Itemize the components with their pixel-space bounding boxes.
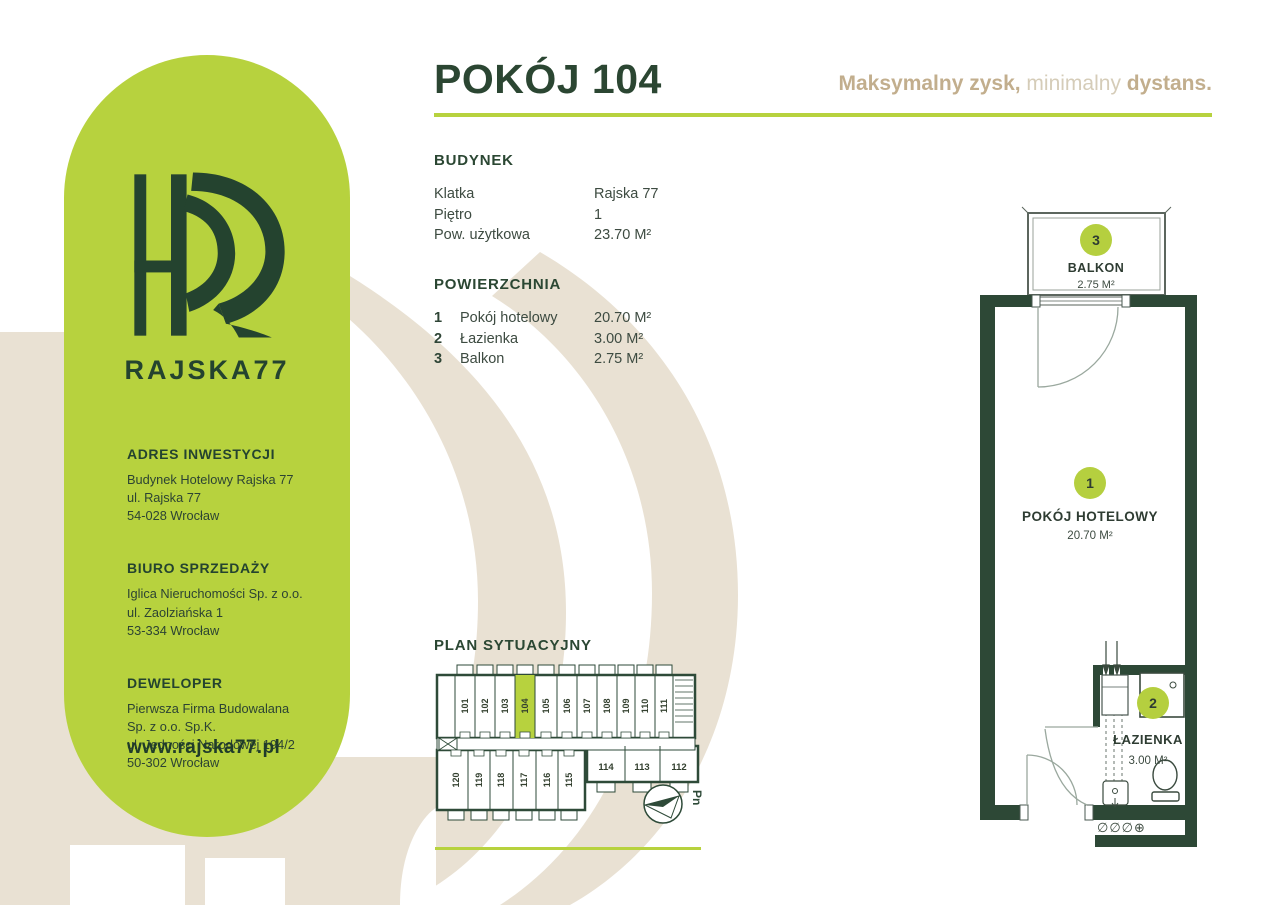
siteplan-room-label: 116: [542, 773, 552, 788]
siteplan-room-label: 112: [671, 762, 686, 773]
website-link[interactable]: www.rajska77.pl: [127, 737, 280, 759]
room-area: 2.75 M²: [1077, 279, 1115, 291]
page-title: POKÓJ 104: [434, 56, 662, 103]
room-label: Pokój hotelowy: [460, 308, 594, 329]
room-area: 3.00 M²: [594, 329, 643, 350]
tagline-bold-1: Maksymalny zysk,: [838, 72, 1020, 95]
room-area: 20.70 M²: [594, 308, 651, 329]
siteplan-room-label: 111: [659, 699, 669, 713]
siteplan-room-label: 117: [519, 773, 529, 788]
siteplan-room-label: 103: [500, 698, 510, 713]
spec-value: Rajska 77: [594, 184, 658, 205]
room-name: ŁAZIENKA: [1113, 732, 1183, 747]
section-biuro-sprzedazy: BIURO SPRZEDAŻY Iglica Nieruchomości Sp.…: [127, 560, 332, 639]
spec-label: Pow. użytkowa: [434, 225, 594, 246]
room-label: Łazienka: [460, 329, 594, 350]
siteplan-room-label: 108: [602, 698, 612, 713]
siteplan-room-label: 120: [451, 772, 461, 787]
address-line: Iglica Nieruchomości Sp. z o.o.: [127, 585, 332, 603]
siteplan-heading: PLAN SYTUACYJNY: [434, 637, 592, 654]
tagline: Maksymalny zysk, minimalny dystans.: [838, 72, 1212, 96]
siteplan-room-label: 118: [496, 773, 506, 788]
rajska77-logo-icon: [127, 165, 292, 345]
site-plan: 101 102 103 104 105 106 107 108 109 110 …: [430, 658, 715, 863]
siteplan-room-label: 114: [598, 762, 614, 773]
room-name: POKÓJ HOTELOWY: [1022, 509, 1158, 524]
spec-row: 1 Pokój hotelowy 20.70 M²: [434, 308, 651, 329]
spec-row: 3 Balkon 2.75 M²: [434, 349, 651, 370]
address-line: Sp. z o.o. Sp.K.: [127, 718, 332, 736]
address-line: Budynek Hotelowy Rajska 77: [127, 471, 332, 489]
siteplan-room-label: 106: [562, 698, 572, 713]
spec-row: 2 Łazienka 3.00 M²: [434, 329, 651, 350]
tagline-light: minimalny: [1021, 72, 1127, 95]
address-line: 53-334 Wrocław: [127, 622, 332, 640]
unit-floor-plan: ∅∅∅⊕ 3 BALKON 2.75 M² 1 POKÓJ HOTELOWY 2…: [975, 205, 1210, 875]
brand-panel: RAJSKA77 ADRES INWESTYCJI Budynek Hotelo…: [64, 55, 350, 837]
budynek-block: BUDYNEK Klatka Rajska 77 Piętro 1 Pow. u…: [434, 152, 658, 246]
powierzchnia-heading: POWIERZCHNIA: [434, 276, 651, 293]
room-area: 20.70 M²: [1067, 530, 1113, 542]
balcony-door-swing: [1038, 307, 1118, 387]
address-line: Pierwsza Firma Budowalana: [127, 700, 332, 718]
compass-north-icon: Pn: [644, 785, 704, 823]
spec-label: Klatka: [434, 184, 594, 205]
spec-value: 23.70 M²: [594, 225, 651, 246]
room-number: 2: [434, 329, 460, 350]
siteplan-room-label: 107: [582, 698, 592, 713]
siteplan-room-label-highlighted: 104: [520, 698, 530, 713]
address-line: ul. Zaolziańska 1: [127, 604, 332, 622]
siteplan-room-label: 110: [640, 699, 650, 714]
room-name: BALKON: [1068, 261, 1124, 275]
powierzchnia-block: POWIERZCHNIA 1 Pokój hotelowy 20.70 M² 2…: [434, 276, 651, 370]
room-number: 3: [434, 349, 460, 370]
spec-row: Piętro 1: [434, 205, 658, 226]
header-rule: [434, 113, 1212, 117]
spec-row: Klatka Rajska 77: [434, 184, 658, 205]
room-area: 3.00 M²: [1129, 755, 1168, 767]
room-label: Balkon: [460, 349, 594, 370]
siteplan-room-label: 119: [474, 773, 484, 788]
section-adres-inwestycji: ADRES INWESTYCJI Budynek Hotelowy Rajska…: [127, 446, 332, 525]
brand-name: RAJSKA77: [64, 355, 350, 386]
budynek-heading: BUDYNEK: [434, 152, 658, 169]
address-line: 54-028 Wrocław: [127, 507, 332, 525]
room-number: 1: [434, 308, 460, 329]
section-heading: ADRES INWESTYCJI: [127, 446, 332, 462]
siteplan-room-label: 101: [460, 698, 470, 713]
brochure-page: RAJSKA77 ADRES INWESTYCJI Budynek Hotelo…: [0, 0, 1280, 905]
section-heading: BIURO SPRZEDAŻY: [127, 560, 332, 576]
siteplan-room-label: 105: [541, 698, 551, 713]
siteplan-room-label: 113: [634, 762, 649, 773]
spec-label: Piętro: [434, 205, 594, 226]
spec-value: 1: [594, 205, 602, 226]
tagline-bold-2: dystans.: [1127, 72, 1212, 95]
sink-icon: [1103, 781, 1128, 807]
siteplan-room-label: 109: [621, 698, 631, 713]
bottom-rule: [435, 847, 701, 850]
room-badge-number: 1: [1086, 475, 1094, 491]
spec-row: Pow. użytkowa 23.70 M²: [434, 225, 658, 246]
entrance-doors: [1020, 727, 1098, 820]
siteplan-room-label: 102: [480, 698, 490, 713]
utility-symbols: ∅∅∅⊕: [1097, 820, 1146, 835]
section-heading: DEWELOPER: [127, 675, 332, 691]
room-badge-number: 3: [1092, 232, 1100, 248]
compass-label: Pn: [690, 790, 704, 805]
address-line: ul. Rajska 77: [127, 489, 332, 507]
room-area: 2.75 M²: [594, 349, 643, 370]
balcony-window: [1032, 295, 1130, 307]
siteplan-room-label: 115: [564, 773, 574, 788]
room-badge-number: 2: [1149, 695, 1157, 711]
